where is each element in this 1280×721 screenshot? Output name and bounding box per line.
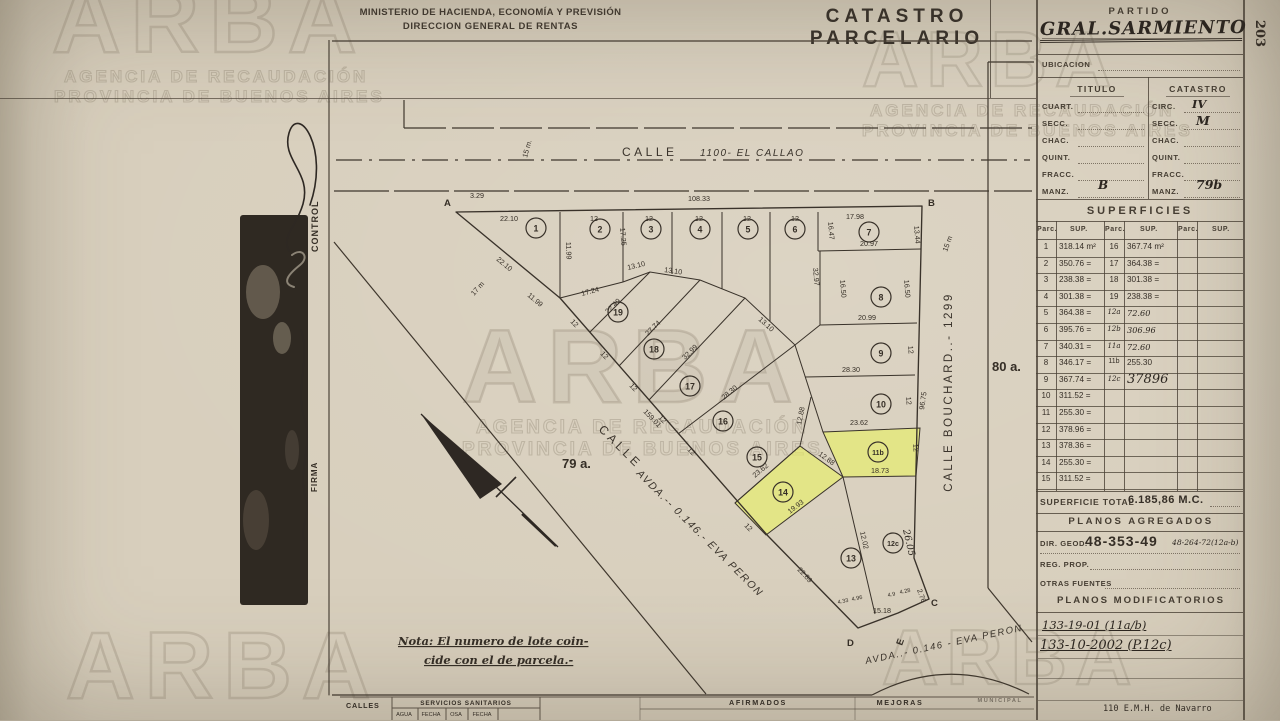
table-row: 6395.76 =12b306.96 <box>1036 323 1243 341</box>
firma-label: FIRMA <box>310 462 319 492</box>
north-arrow <box>421 414 558 547</box>
dimension-label: 96.75 <box>917 391 928 410</box>
partido-label: PARTIDO <box>1060 6 1220 17</box>
street-name-top-detail: 1100- EL CALLAO <box>700 148 804 159</box>
lot-number: 10 <box>876 400 886 410</box>
table-row: 9367.74 =12c37896 <box>1036 373 1243 391</box>
dimension-label: 18.73 <box>871 466 889 475</box>
secc-value: M <box>1196 113 1210 128</box>
dimension-label: 28.30 <box>842 365 860 374</box>
dir-geod-label: DIR. GEOD. <box>1040 539 1088 548</box>
dimension-label: 12.02 <box>858 530 871 550</box>
dimension-label: 12 <box>645 214 653 223</box>
reg-prop-label: REG. PROP. <box>1040 560 1089 569</box>
area-label-80a: 80 a. <box>992 359 1021 374</box>
titulo-header: TITULO <box>1062 84 1132 94</box>
col-header-parc: Parc. <box>1037 226 1057 233</box>
dimension-label: 22.10 <box>500 214 518 223</box>
dimension-label: 12 <box>590 214 598 223</box>
area-label-79a: 79 a. <box>562 456 591 471</box>
col-header-sup: SUP. <box>1212 226 1230 233</box>
lot-number: 16 <box>718 417 728 427</box>
dimension-label: 12 <box>695 214 703 223</box>
street-name-right: CALLE BOUCHARD..- 1299 <box>943 292 955 491</box>
row-label: SECC. <box>1042 119 1068 128</box>
lot-number: 4 <box>698 225 703 235</box>
superficie-total-label: SUPERFICIE TOTAL <box>1040 497 1135 507</box>
col-header-parc: Parc. <box>1105 226 1125 233</box>
dimension-label: 4.96 <box>851 595 863 603</box>
partido-value: GRAL.SARMIENTO <box>1040 17 1242 43</box>
map-bottom-border <box>332 674 1029 695</box>
table-row: 7340.31 =11a72.60 <box>1036 340 1243 358</box>
dimension-label: 22.89 <box>796 565 815 584</box>
superficie-total-value: 6.185,86 M.C. <box>1128 494 1204 506</box>
dimension-label: 4.33 <box>837 598 849 606</box>
table-row: 11255.30 = <box>1036 406 1243 424</box>
dimension-label: 32.99 <box>680 342 699 361</box>
bottom-subcol: FECHA <box>473 712 492 718</box>
row-label: MANZ. <box>1152 187 1179 196</box>
bottom-col-municipal: MUNICIPAL <box>977 698 1022 704</box>
lot-number: 2 <box>598 225 603 235</box>
bottom-subcol: FECHA <box>422 712 441 718</box>
dimension-label: 108.33 <box>688 194 710 203</box>
dimension-label: 12 <box>599 349 611 361</box>
dimension-label: 11.99 <box>564 242 574 260</box>
ubicacion-label: UBICACION <box>1042 60 1090 69</box>
dimension-label: 28.30 <box>720 383 740 401</box>
table-row: 2350.76 =17364.38 = <box>1036 257 1243 275</box>
planos-agregados-title: PLANOS AGREGADOS <box>1056 516 1226 527</box>
bottom-subcol: OSA <box>450 712 462 718</box>
modificatorio-entry: 133-19-01 (11a/b) <box>1042 618 1146 632</box>
row-label: QUINT. <box>1152 153 1181 162</box>
dimension-label: 4.9 <box>887 591 896 598</box>
superficies-title: SUPERFICIES <box>1060 205 1220 217</box>
dimension-label: 13.10 <box>757 315 776 334</box>
dimension-label: 20.97 <box>860 239 878 248</box>
scanned-cadastral-document: ARBA AGENCIA DE RECAUDACIÓN PROVINCIA DE… <box>0 0 1280 720</box>
modificatorio-entry: 133-10-2002 (P.12c) <box>1040 638 1172 653</box>
dimension-label: 13.10 <box>626 259 646 272</box>
circ-value: IV <box>1192 97 1206 111</box>
lot-number: 14 <box>778 488 788 498</box>
footer-reference: 110 E.M.H. de Navarro <box>1103 704 1212 714</box>
corner-label: E <box>894 637 907 647</box>
dimension-label: 12 <box>743 521 755 533</box>
dimension-label: 12 <box>904 396 914 405</box>
table-row: 3238.38 =18301.38 = <box>1036 273 1243 291</box>
lot-number: 13 <box>846 554 856 564</box>
table-row: 14255.30 = <box>1036 456 1243 474</box>
dimension-label: 13.44 <box>912 225 923 244</box>
dimension-label: 32.97 <box>811 267 822 286</box>
row-label: FRACC. <box>1042 170 1074 179</box>
table-row: 12378.96 = <box>1036 423 1243 441</box>
dimension-label: 16.50 <box>838 279 849 298</box>
table-row: 13378.36 = <box>1036 439 1243 457</box>
dimension-label: 16.47 <box>826 221 837 240</box>
col-header-sup: SUP. <box>1070 226 1088 233</box>
dimension-label: 12 <box>911 443 921 452</box>
corner-label: A <box>444 198 451 209</box>
dimension-label: 16.50 <box>902 279 913 298</box>
dimension-label: 17.24 <box>580 285 600 298</box>
catastro-header: CATASTRO <box>1160 84 1236 94</box>
lot-number: 5 <box>746 225 751 235</box>
dimension-label: 17.98 <box>846 212 864 221</box>
document-title: CATASTRO PARCELARIO <box>782 6 1012 50</box>
dimension-label: 12 <box>743 214 751 223</box>
map-note-line2: cide con el de parcela.- <box>424 653 574 667</box>
street-name-diagonal: CALLE <box>596 422 645 471</box>
dimension-label: 20.99 <box>858 313 876 322</box>
bottom-col-servicios: SERVICIOS SANITARIOS <box>420 700 511 707</box>
dimension-label: 3.29 <box>470 191 484 200</box>
table-row: 15311.52 = <box>1036 472 1243 490</box>
avenue-edge <box>334 242 706 694</box>
row-label: QUINT. <box>1042 153 1071 162</box>
bottom-col-calles: CALLES <box>346 701 380 710</box>
row-label: FRACC. <box>1152 170 1184 179</box>
lot-number: 18 <box>649 345 659 355</box>
table-row: 10311.52 = <box>1036 389 1243 407</box>
manz-value-catastro: 79b <box>1196 177 1222 192</box>
dimension-label: 12 <box>686 445 698 457</box>
dimension-label: 4.28 <box>899 588 911 596</box>
row-label: CHAC. <box>1152 136 1179 145</box>
page-number: 203 <box>1252 20 1267 47</box>
dimension-label: 12 <box>906 345 916 354</box>
lot-number: 6 <box>793 225 798 235</box>
dimension-label: 27.74 <box>643 318 662 337</box>
dimension-label: 12 <box>791 214 799 223</box>
dimension-label: 12 <box>628 381 640 393</box>
table-row: 1318.14 m²16367.74 m² <box>1036 240 1243 258</box>
bottom-subcol: AGUA <box>396 712 412 718</box>
lot-number: 11b <box>872 450 884 457</box>
dimension-label: 23.62 <box>850 418 868 427</box>
lot-number: 15 <box>752 453 762 463</box>
row-label: SECC. <box>1152 119 1178 128</box>
lot-number: 8 <box>879 293 884 303</box>
lot-number: 12c <box>887 541 899 548</box>
street-width-label: 15 m <box>940 235 954 253</box>
col-header-parc: Parc. <box>1178 226 1198 233</box>
dir-geod-value: 48-353-49 <box>1085 533 1158 549</box>
table-row: 5364.38 =12a72.60 <box>1036 306 1243 324</box>
lot-number: 3 <box>649 225 654 235</box>
street-width-label: 15 m. <box>520 139 533 159</box>
table-row: 4301.38 =19238.38 = <box>1036 290 1243 308</box>
row-label: CHAC. <box>1042 136 1069 145</box>
planos-modificatorios-title: PLANOS MODIFICATORIOS <box>1048 595 1234 606</box>
lot-number: 9 <box>879 349 884 359</box>
lot-number: 1 <box>534 224 539 234</box>
ministry-line2: DIRECCION GENERAL DE RENTAS <box>348 21 633 32</box>
cadastral-map: CONTROL FIRMA <box>228 40 1038 720</box>
lot-number: 7 <box>867 228 872 238</box>
map-note-line1: Nota: El numero de lote coin- <box>397 634 589 648</box>
row-label: CUART. <box>1042 102 1073 111</box>
dimension-label: 11.99 <box>526 291 545 309</box>
bottom-col-afirmados: AFIRMADOS <box>729 698 787 707</box>
manz-value-titulo: B <box>1098 178 1108 192</box>
row-label: CIRC. <box>1152 102 1176 111</box>
lot-number: 17 <box>685 382 695 392</box>
otras-fuentes-label: OTRAS FUENTES <box>1040 579 1112 588</box>
corner-label: B <box>928 198 935 209</box>
col-header-sup: SUP. <box>1140 226 1158 233</box>
street-width-label: 17 m <box>469 279 486 297</box>
control-label: CONTROL <box>310 201 320 253</box>
corner-label: C <box>931 598 938 609</box>
dimension-label: 15.18 <box>873 606 891 615</box>
corner-label: D <box>847 638 854 649</box>
street-name-top: CALLE <box>622 145 678 159</box>
ministry-line1: MINISTERIO DE HACIENDA, ECONOMÍA Y PREVI… <box>348 7 633 18</box>
dimension-label: 159.01 <box>642 407 664 429</box>
row-label: MANZ. <box>1042 187 1069 196</box>
dimension-label: 17.25 <box>618 227 629 246</box>
dir-geod-note: 48-264-72(12a-b) <box>1172 538 1239 547</box>
street-name-bottom: AVDA..- 0.146 - EVA PERON <box>863 623 1023 667</box>
street-name-diagonal-detail: AVDA.-- 0.146.- EVA PERON <box>633 467 765 599</box>
bottom-col-mejoras: MEJORAS <box>877 698 924 707</box>
